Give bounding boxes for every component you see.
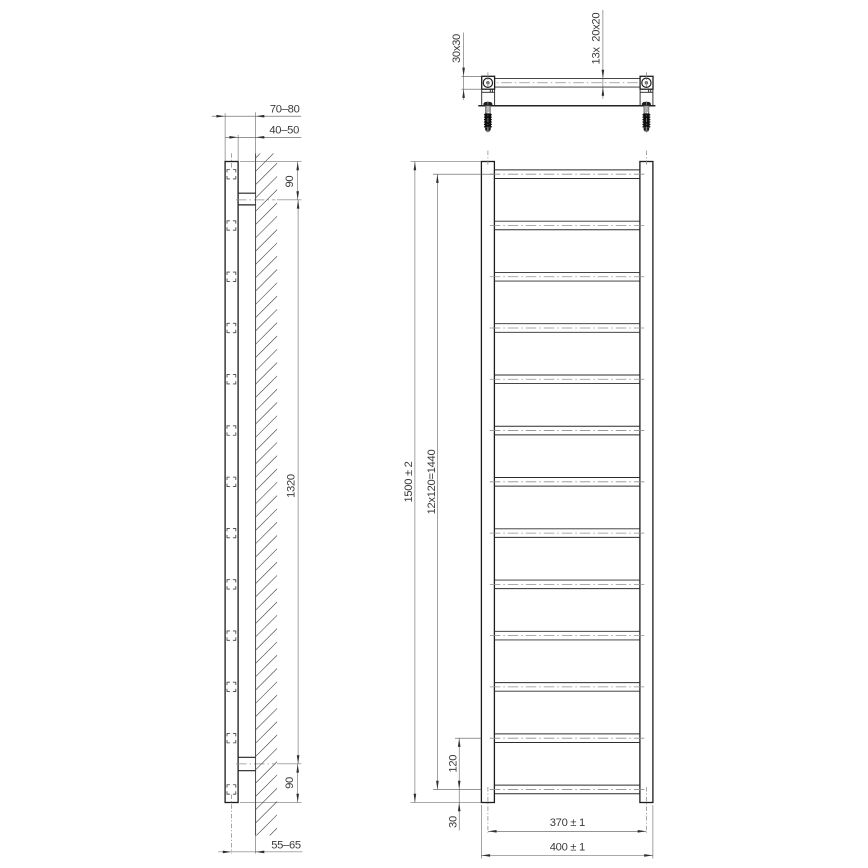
svg-text:30x30: 30x30 <box>451 34 463 63</box>
svg-text:13x 20x20: 13x 20x20 <box>590 13 602 65</box>
svg-text:70–80: 70–80 <box>270 104 300 116</box>
svg-text:40–50: 40–50 <box>269 125 299 137</box>
svg-text:1320: 1320 <box>285 474 297 498</box>
svg-text:90: 90 <box>284 176 296 188</box>
svg-text:90: 90 <box>284 777 296 789</box>
svg-text:30: 30 <box>448 816 460 828</box>
svg-text:1500 ± 2: 1500 ± 2 <box>403 461 415 502</box>
svg-text:400 ± 1: 400 ± 1 <box>550 841 585 853</box>
svg-text:120: 120 <box>448 755 460 773</box>
svg-text:370 ± 1: 370 ± 1 <box>550 817 585 829</box>
svg-text:12x120=1440: 12x120=1440 <box>426 450 438 515</box>
svg-text:55–65: 55–65 <box>271 839 301 851</box>
